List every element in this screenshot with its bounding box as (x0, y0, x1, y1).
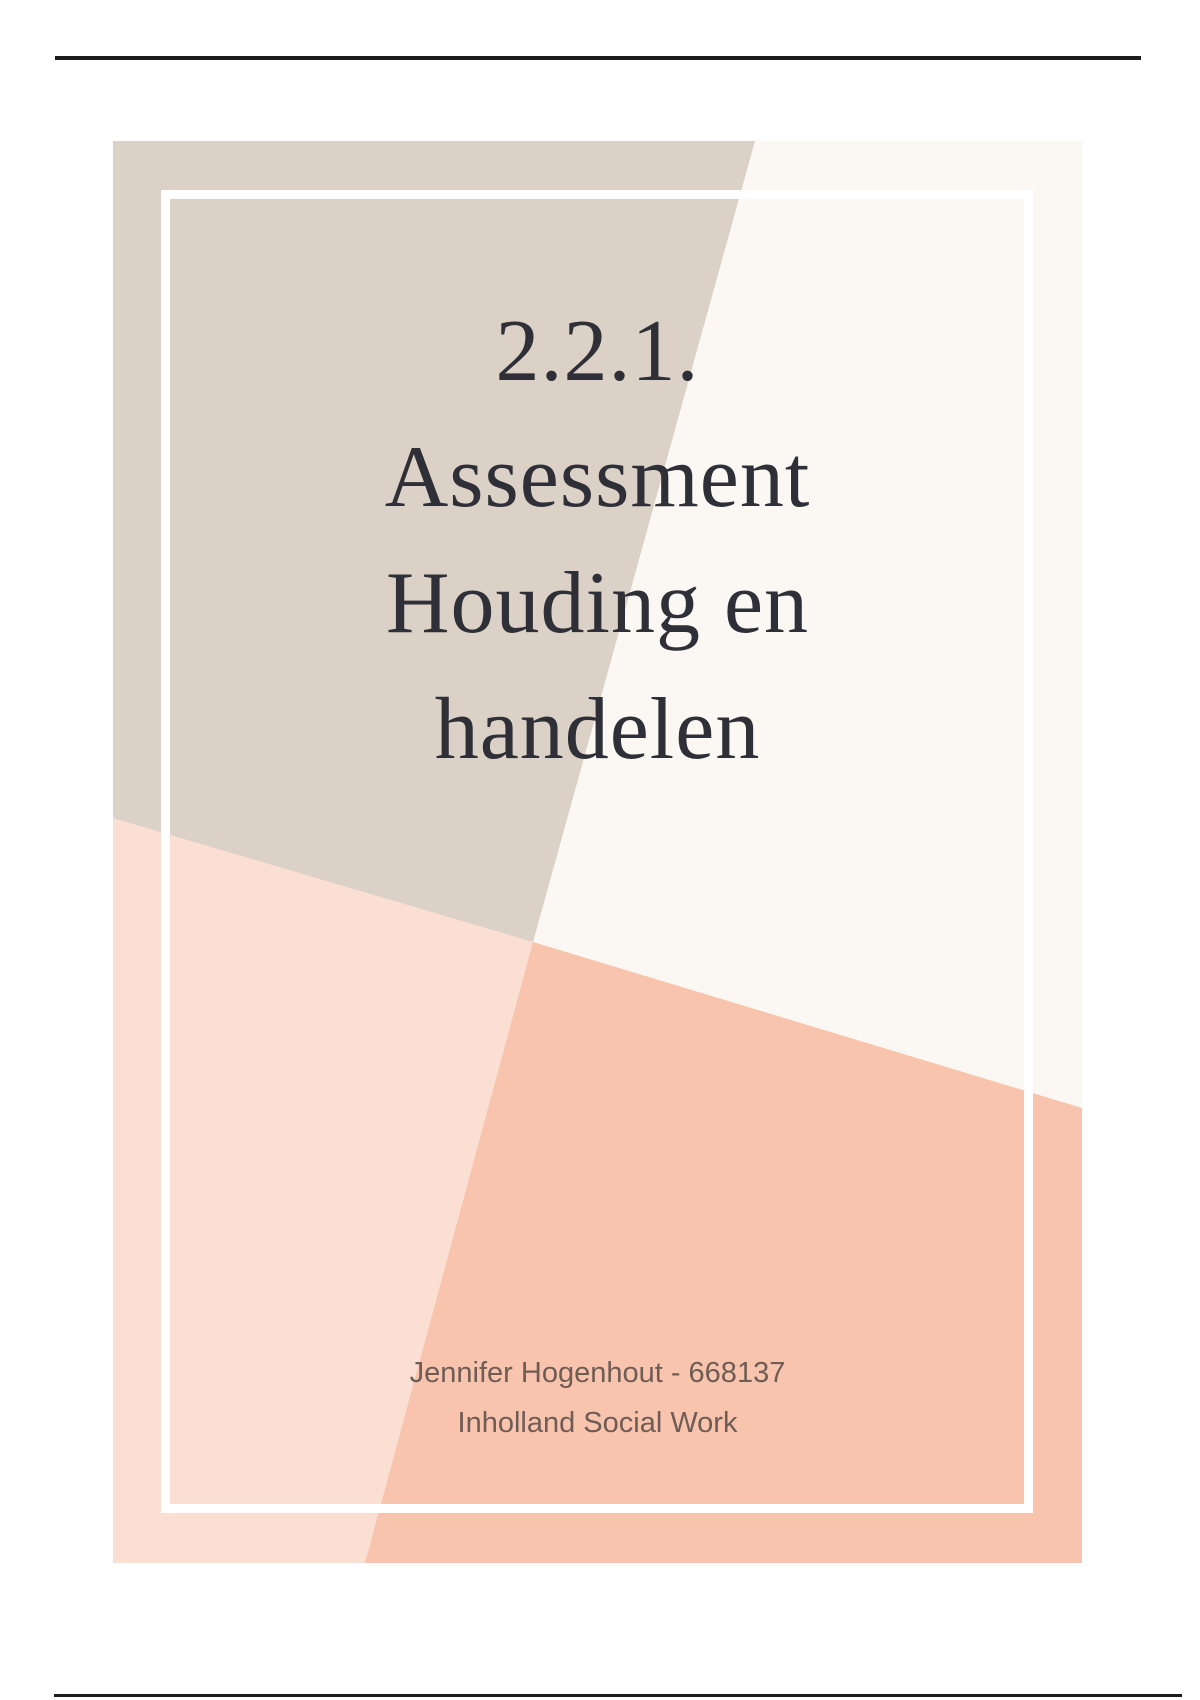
top-rule (55, 56, 1141, 60)
title-line-assessment: Assessment (170, 415, 1025, 541)
cover-artwork: 2.2.1. Assessment Houding en handelen Je… (113, 141, 1082, 1563)
document-page: 2.2.1. Assessment Houding en handelen Je… (0, 0, 1200, 1700)
author-name-line: Jennifer Hogenhout - 668137 (170, 1348, 1025, 1398)
title-line-handelen: handelen (170, 667, 1025, 793)
title-line-number: 2.2.1. (170, 289, 1025, 415)
title-line-houding: Houding en (170, 541, 1025, 667)
author-school-line: Inholland Social Work (170, 1398, 1025, 1448)
bottom-rule (54, 1694, 1182, 1697)
cover-title: 2.2.1. Assessment Houding en handelen (170, 289, 1025, 793)
cover-author: Jennifer Hogenhout - 668137 Inholland So… (170, 1348, 1025, 1448)
